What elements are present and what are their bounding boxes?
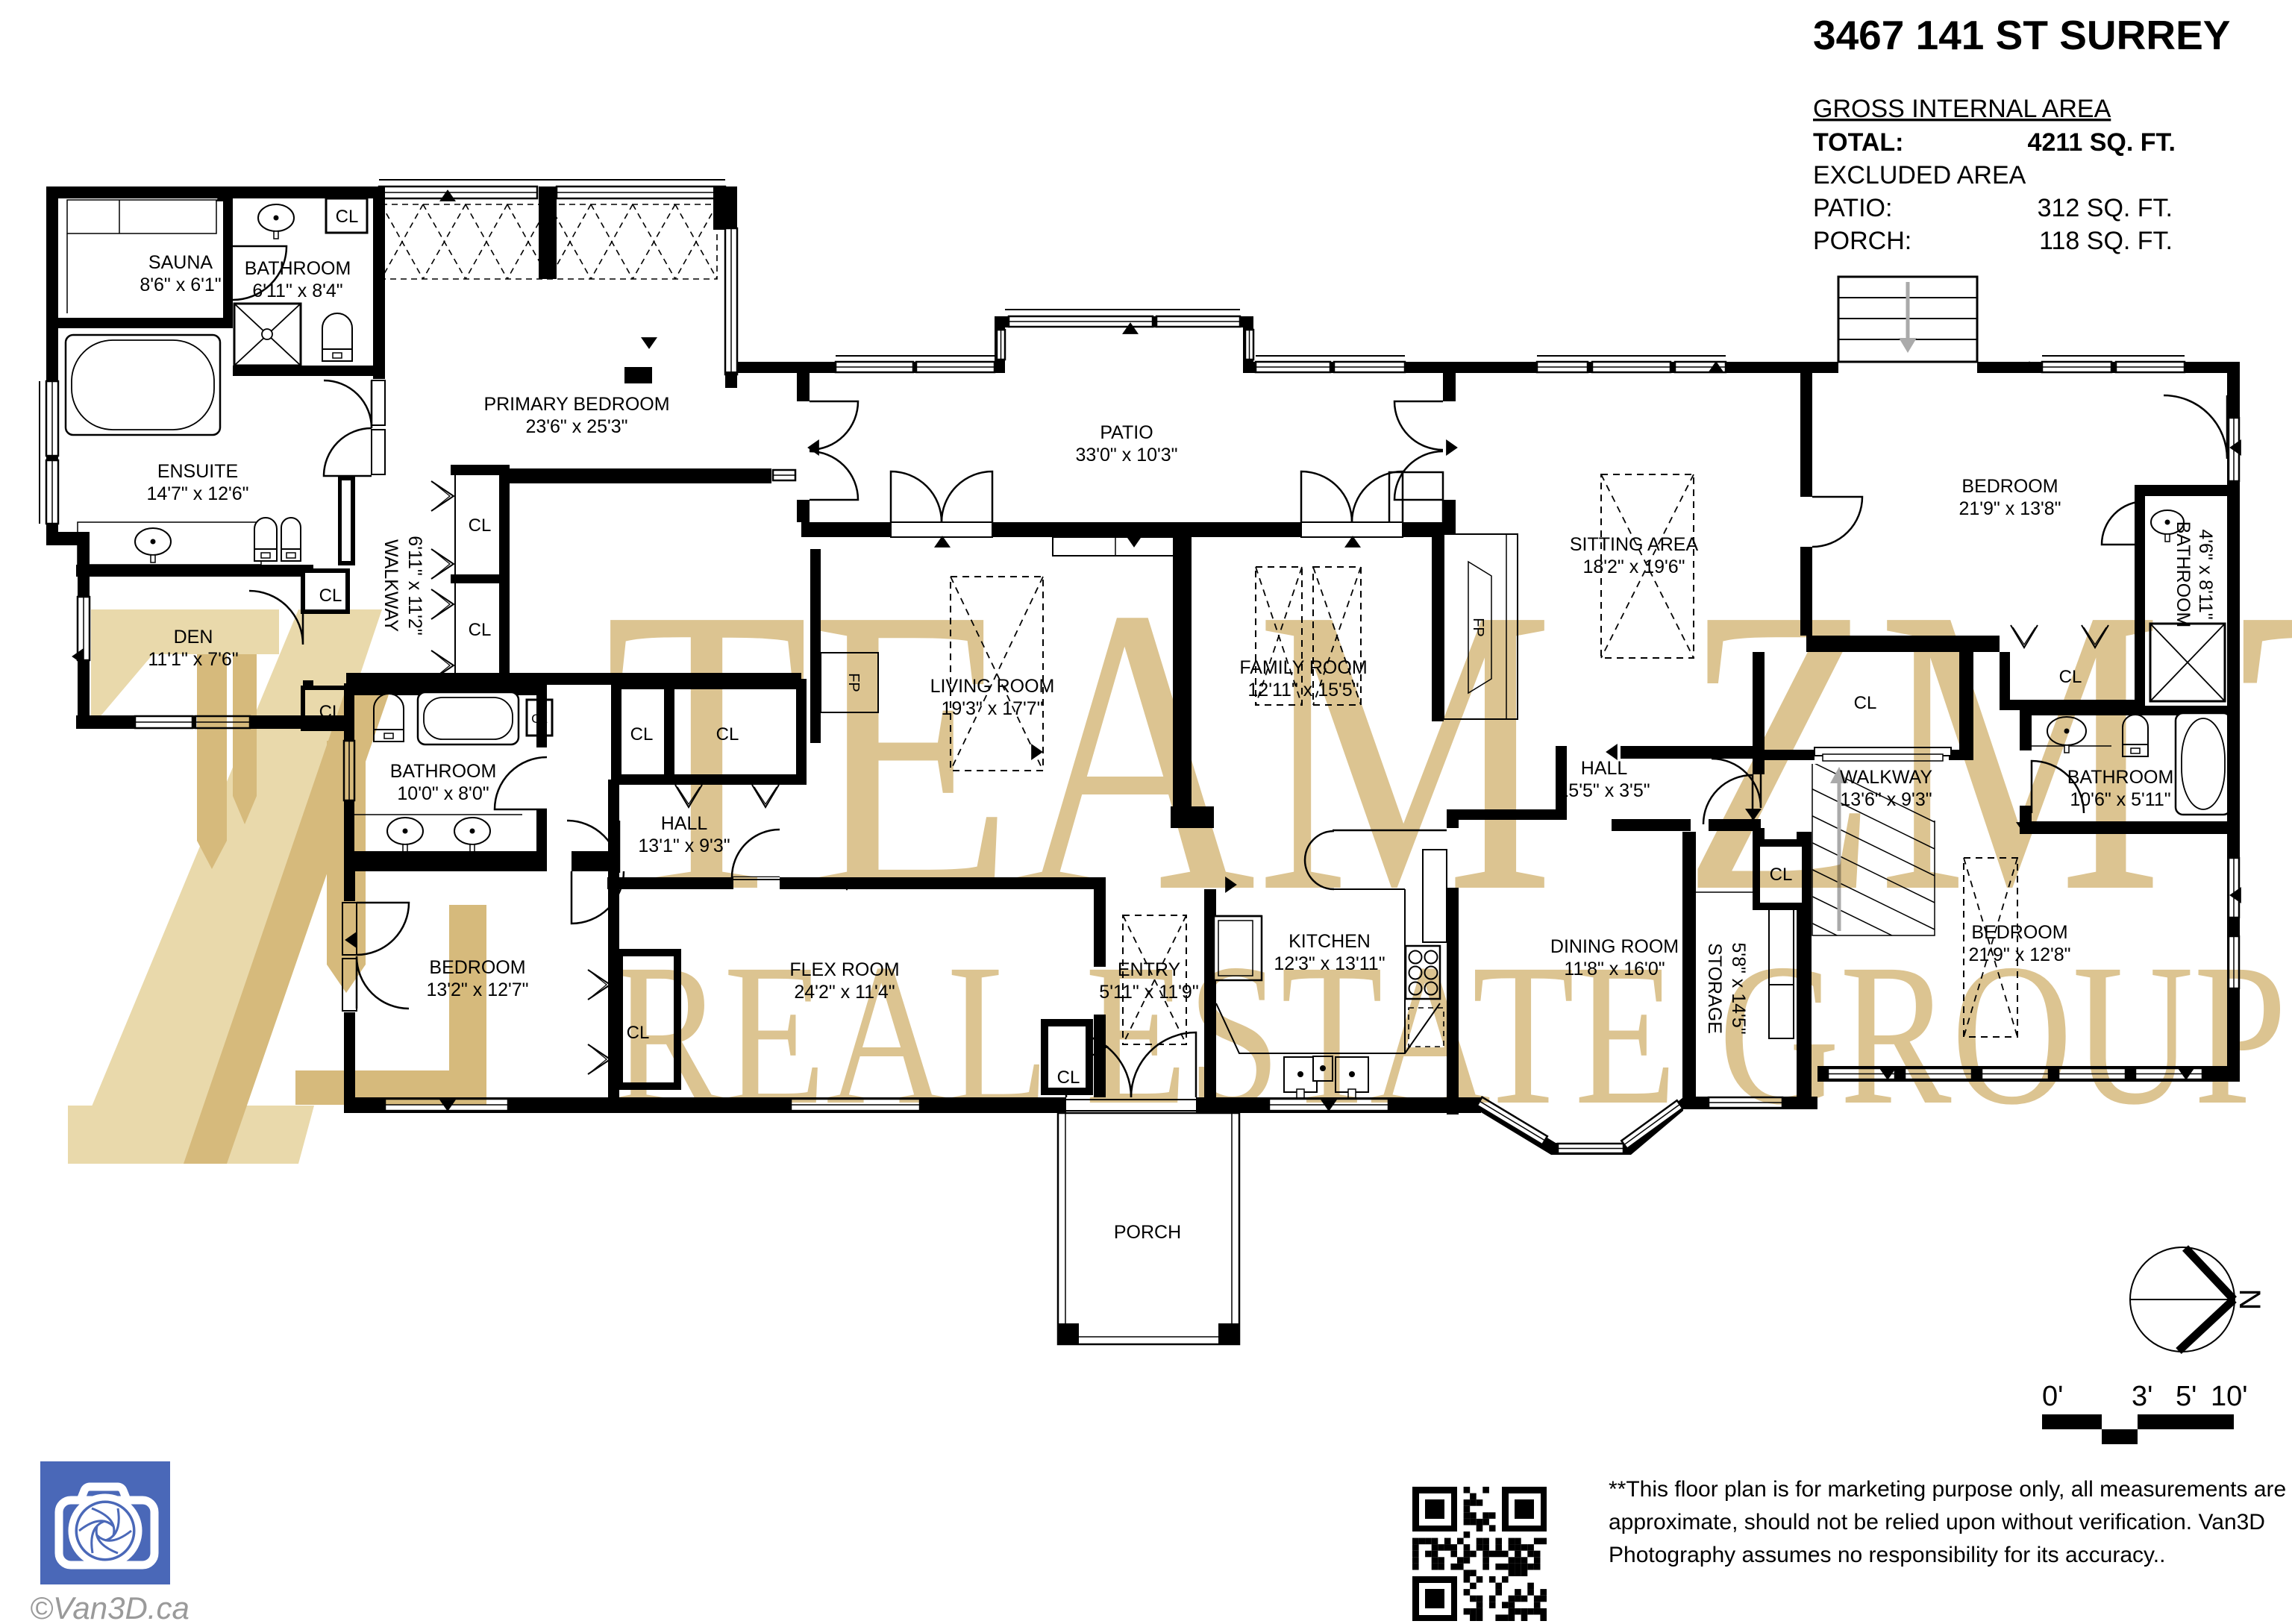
svg-text:6'11" x 8'4": 6'11" x 8'4" <box>252 280 342 301</box>
svg-text:N: N <box>2233 1289 2266 1311</box>
svg-text:15'5" x 3'5": 15'5" x 3'5" <box>1558 780 1650 801</box>
svg-text:33'0" x 10'3": 33'0" x 10'3" <box>1075 445 1177 465</box>
svg-text:HALL: HALL <box>1581 758 1628 779</box>
svg-text:PATIO: PATIO <box>1100 422 1153 443</box>
svg-text:10'0" x 8'0": 10'0" x 8'0" <box>397 783 489 804</box>
svg-text:approximate, should not be rel: approximate, should not be relied upon w… <box>1609 1510 2265 1534</box>
svg-text:ENSUITE: ENSUITE <box>157 461 238 482</box>
svg-text:18'2" x 19'6": 18'2" x 19'6" <box>1582 557 1685 577</box>
svg-text:312 SQ. FT.: 312 SQ. FT. <box>2038 194 2173 222</box>
svg-text:REAL ESTATE GROUP: REAL ESTATE GROUP <box>612 922 2287 1147</box>
svg-text:BATHROOM: BATHROOM <box>245 258 351 279</box>
svg-text:CL: CL <box>531 712 548 726</box>
svg-text:**This floor plan is for marke: **This floor plan is for marketing purpo… <box>1609 1477 2286 1502</box>
svg-text:TEAM: TEAM <box>604 524 1554 976</box>
svg-text:3': 3' <box>2132 1381 2152 1412</box>
svg-text:ZM: ZM <box>1682 524 2162 976</box>
svg-text:4'6" x 8'11": 4'6" x 8'11" <box>2195 529 2216 619</box>
svg-text:0': 0' <box>2042 1381 2063 1412</box>
svg-text:6'11" x 11'2": 6'11" x 11'2" <box>404 536 425 635</box>
svg-text:14'7" x 12'6": 14'7" x 12'6" <box>146 483 248 504</box>
svg-text:WALKWAY: WALKWAY <box>381 539 401 632</box>
svg-text:GROSS INTERNAL AREA: GROSS INTERNAL AREA <box>1813 95 2111 123</box>
svg-text:3467 141 ST SURREY: 3467 141 ST SURREY <box>1813 12 2230 58</box>
svg-text:CL: CL <box>469 515 492 536</box>
svg-text:118 SQ. FT.: 118 SQ. FT. <box>2039 227 2173 255</box>
svg-text:PATIO:: PATIO: <box>1813 194 1892 222</box>
svg-text:BEDROOM: BEDROOM <box>1961 476 2058 497</box>
svg-text:©Van3D.ca: ©Van3D.ca <box>30 1590 190 1624</box>
svg-text:CL: CL <box>336 207 359 227</box>
svg-text:4211 SQ. FT.: 4211 SQ. FT. <box>2028 128 2176 157</box>
svg-text:21'9" x 13'8": 21'9" x 13'8" <box>1958 498 2061 519</box>
svg-text:BATHROOM: BATHROOM <box>2173 521 2194 628</box>
svg-text:5': 5' <box>2176 1381 2196 1412</box>
svg-text:PORCH:: PORCH: <box>1813 227 1911 255</box>
svg-text:T: T <box>2236 524 2292 976</box>
svg-text:TOTAL:: TOTAL: <box>1813 128 1904 157</box>
svg-text:Photography assumes no respons: Photography assumes no responsibility fo… <box>1609 1543 2165 1567</box>
svg-text:PORCH: PORCH <box>1114 1222 1181 1243</box>
svg-text:CL: CL <box>469 620 492 640</box>
svg-text:23'6" x 25'3": 23'6" x 25'3" <box>525 416 627 437</box>
svg-text:PRIMARY BEDROOM: PRIMARY BEDROOM <box>483 394 669 415</box>
svg-text:10': 10' <box>2211 1381 2248 1412</box>
svg-text:CL: CL <box>319 586 342 606</box>
svg-text:EXCLUDED AREA: EXCLUDED AREA <box>1813 161 2026 189</box>
svg-text:8'6" x 6'1": 8'6" x 6'1" <box>140 275 221 295</box>
svg-text:SITTING AREA: SITTING AREA <box>1570 534 1699 555</box>
svg-text:BATHROOM: BATHROOM <box>390 761 497 782</box>
svg-text:SAUNA: SAUNA <box>148 252 213 273</box>
